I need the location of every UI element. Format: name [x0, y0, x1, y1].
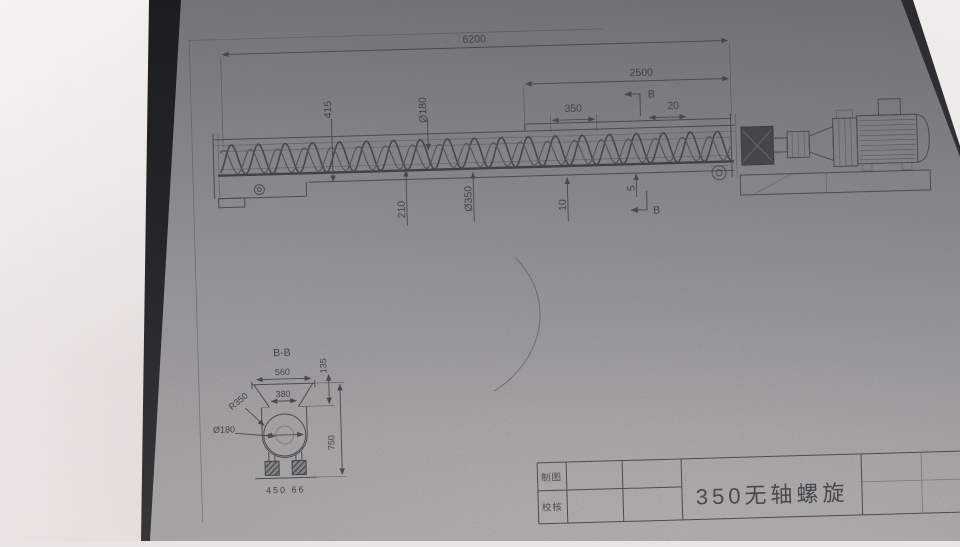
dim-380-label: 380 — [275, 389, 290, 399]
dim-d350-label: Ø350 — [462, 186, 475, 212]
dim-5-label: 5 — [625, 185, 637, 191]
dim-outlet-drop: 210 — [395, 170, 409, 225]
dim-750-label: 750 — [326, 435, 336, 450]
drive-unit — [738, 98, 930, 195]
dim-210-label: 210 — [396, 201, 408, 219]
dim-2500-label: 2500 — [629, 67, 653, 80]
gearbox-cone — [809, 127, 834, 162]
coupling — [787, 131, 810, 158]
drive-shaft — [773, 138, 787, 152]
section-letter-b-bottom: B — [653, 204, 660, 216]
section-title: B-B — [273, 347, 291, 359]
dim-6200-label: 6200 — [462, 33, 486, 46]
support-legs — [255, 451, 317, 479]
title-block-drawn-by-label: 制图 — [541, 471, 562, 484]
drawing-title: 350无轴螺旋 — [695, 480, 848, 509]
dim-10-label: 10 — [557, 199, 569, 211]
main-view: 6200 2500 350 20 — [210, 21, 931, 231]
section-letter-b-top: B — [648, 88, 655, 100]
photo-of-drawing: 6200 2500 350 20 — [0, 0, 960, 541]
section-marker-b-top: B — [625, 88, 656, 116]
dim-gap: 20 — [649, 100, 685, 118]
frame-border — [189, 27, 615, 522]
base-note-label: 450 66 — [266, 484, 306, 495]
section-marker-b-bottom: B — [631, 190, 661, 217]
conveyor-drawing: 6200 2500 350 20 — [0, 0, 960, 547]
title-block-checked-by-label: 校核 — [542, 501, 563, 514]
dim-overall-length: 6200 — [220, 26, 732, 147]
motor — [856, 98, 930, 171]
trough-cross-section — [261, 406, 307, 458]
gearbox — [832, 110, 858, 167]
dim-clearance-10: 10 — [556, 178, 569, 221]
dim-spiral-diameter-main: Ø350 — [462, 173, 475, 222]
crease-line — [490, 257, 542, 391]
dim-clearance-5: 5 — [625, 174, 638, 197]
title-block: 制图 校核 350无轴螺旋 — [537, 451, 960, 524]
drive-base — [740, 170, 930, 195]
dim-560-label: 560 — [275, 367, 290, 377]
support-wheel-right — [710, 165, 728, 179]
dim-415-label: 415 — [322, 101, 334, 119]
motor-junction-box — [878, 99, 900, 116]
section-view-bb: B-B 560 380 135 — [211, 345, 347, 497]
dim-d180-section-label: Ø180 — [213, 424, 235, 435]
dim-350-label: 350 — [564, 103, 582, 115]
dim-outlet-length: 350 — [550, 102, 597, 132]
dim-135-label: 135 — [318, 358, 328, 373]
dim-20-label: 20 — [667, 100, 679, 112]
conveyor-trough — [213, 113, 738, 208]
hanger-mark-left — [254, 184, 264, 194]
